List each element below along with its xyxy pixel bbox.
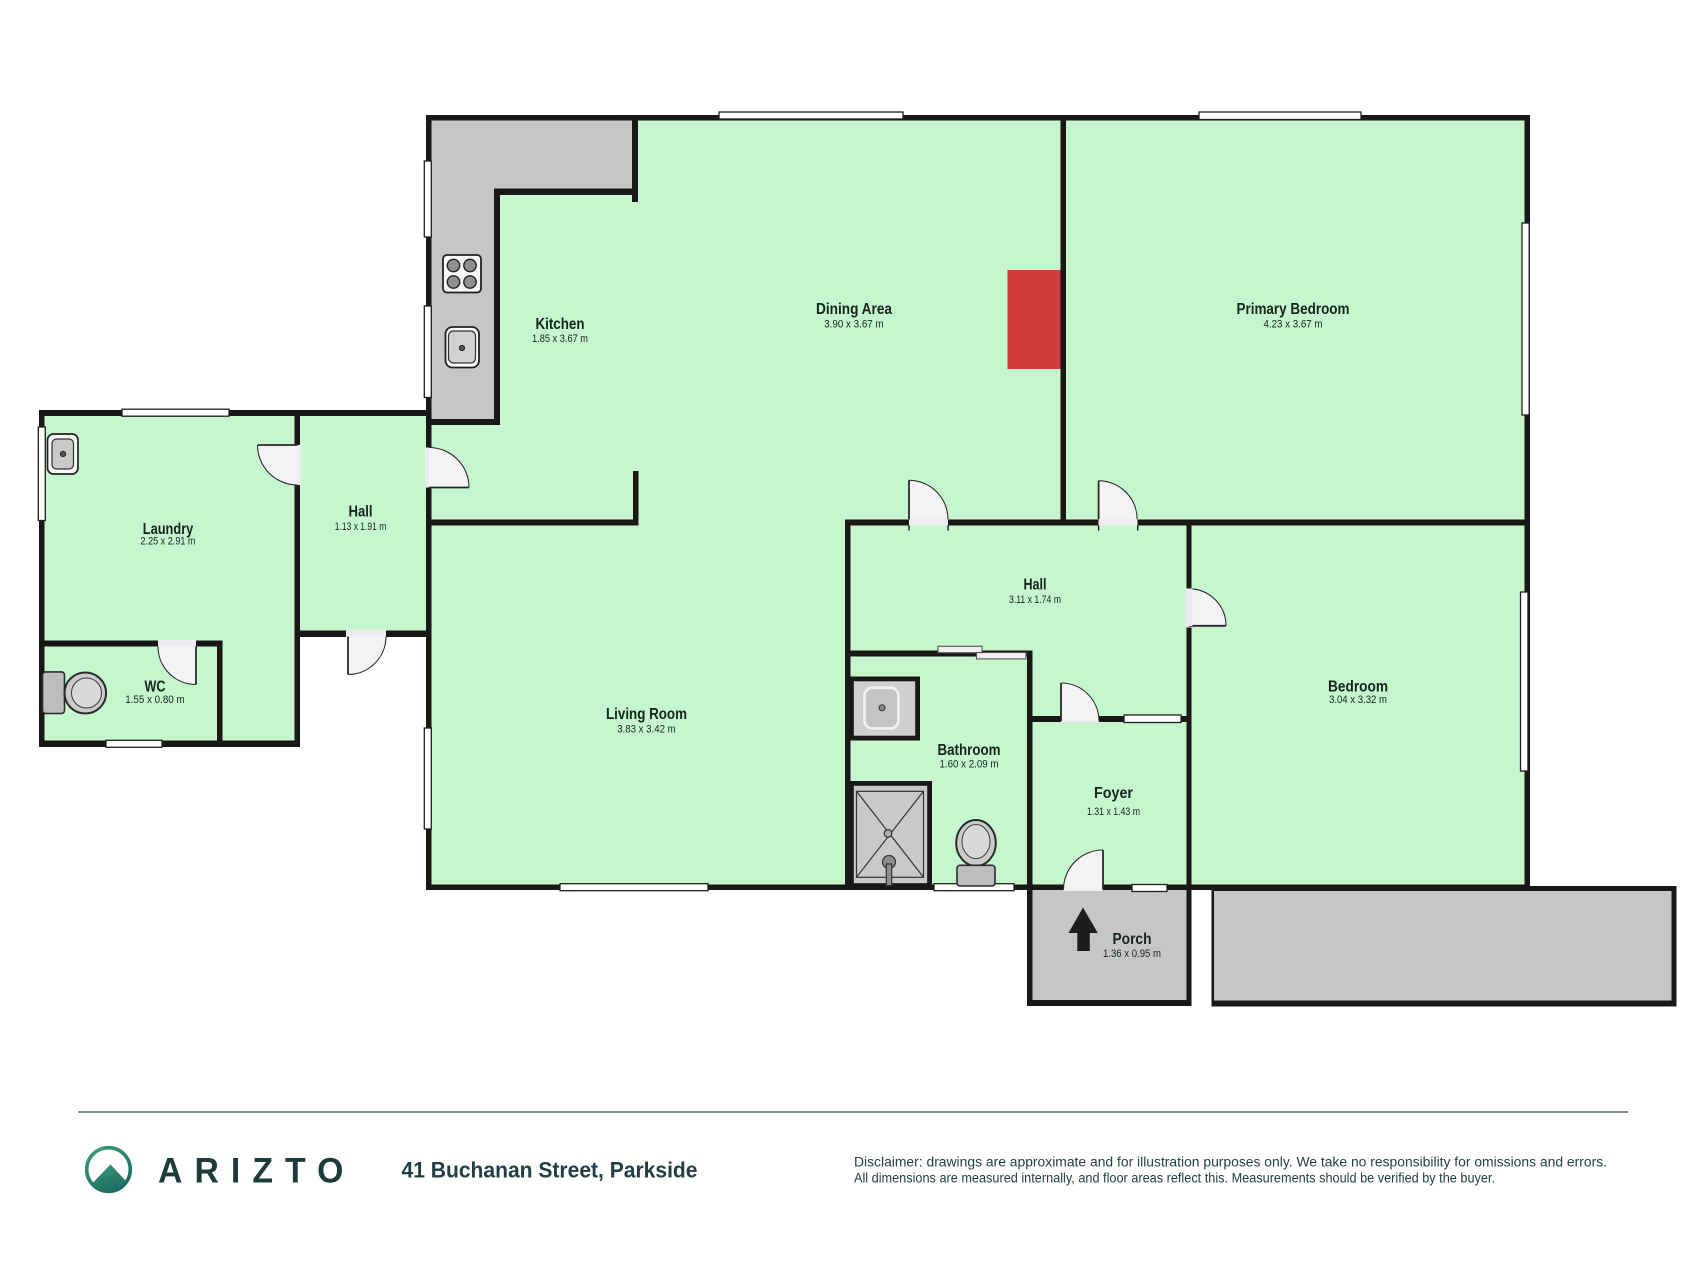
svg-text:3.04 x 3.32 m: 3.04 x 3.32 m (1329, 694, 1387, 706)
svg-text:1.13 x 1.91 m: 1.13 x 1.91 m (335, 521, 387, 533)
svg-text:2.25 x 2.91 m: 2.25 x 2.91 m (141, 536, 196, 548)
svg-text:Bathroom: Bathroom (938, 742, 1001, 759)
svg-text:All dimensions are measured in: All dimensions are measured internally, … (854, 1171, 1495, 1187)
svg-text:1.36 x 0.95 m: 1.36 x 0.95 m (1103, 948, 1161, 960)
svg-text:1.85 x 3.67 m: 1.85 x 3.67 m (532, 333, 588, 345)
svg-text:Living Room: Living Room (606, 706, 687, 723)
svg-text:3.90 x 3.67 m: 3.90 x 3.67 m (824, 319, 884, 331)
svg-text:ARIZTO: ARIZTO (158, 1152, 356, 1191)
svg-text:Hall: Hall (1024, 577, 1047, 594)
svg-text:3.83 x 3.42 m: 3.83 x 3.42 m (617, 724, 676, 736)
svg-text:Porch: Porch (1113, 931, 1152, 948)
svg-text:3.11 x 1.74 m: 3.11 x 1.74 m (1009, 594, 1061, 606)
svg-text:Bedroom: Bedroom (1328, 679, 1388, 696)
svg-text:41 Buchanan Street, Parkside: 41 Buchanan Street, Parkside (402, 1157, 698, 1182)
svg-text:1.60 x 2.09 m: 1.60 x 2.09 m (940, 759, 999, 771)
svg-text:Primary Bedroom: Primary Bedroom (1237, 301, 1350, 318)
svg-text:Foyer: Foyer (1094, 785, 1133, 802)
svg-text:4.23 x 3.67 m: 4.23 x 3.67 m (1264, 319, 1323, 331)
svg-text:Disclaimer: drawings are appro: Disclaimer: drawings are approximate and… (854, 1155, 1607, 1171)
svg-text:WC: WC (145, 679, 166, 696)
svg-text:1.31 x 1.43 m: 1.31 x 1.43 m (1087, 806, 1140, 818)
svg-text:Kitchen: Kitchen (536, 316, 585, 333)
svg-text:Dining Area: Dining Area (816, 301, 892, 318)
svg-text:1.55 x 0.80 m: 1.55 x 0.80 m (125, 694, 185, 706)
svg-text:Hall: Hall (349, 504, 373, 521)
